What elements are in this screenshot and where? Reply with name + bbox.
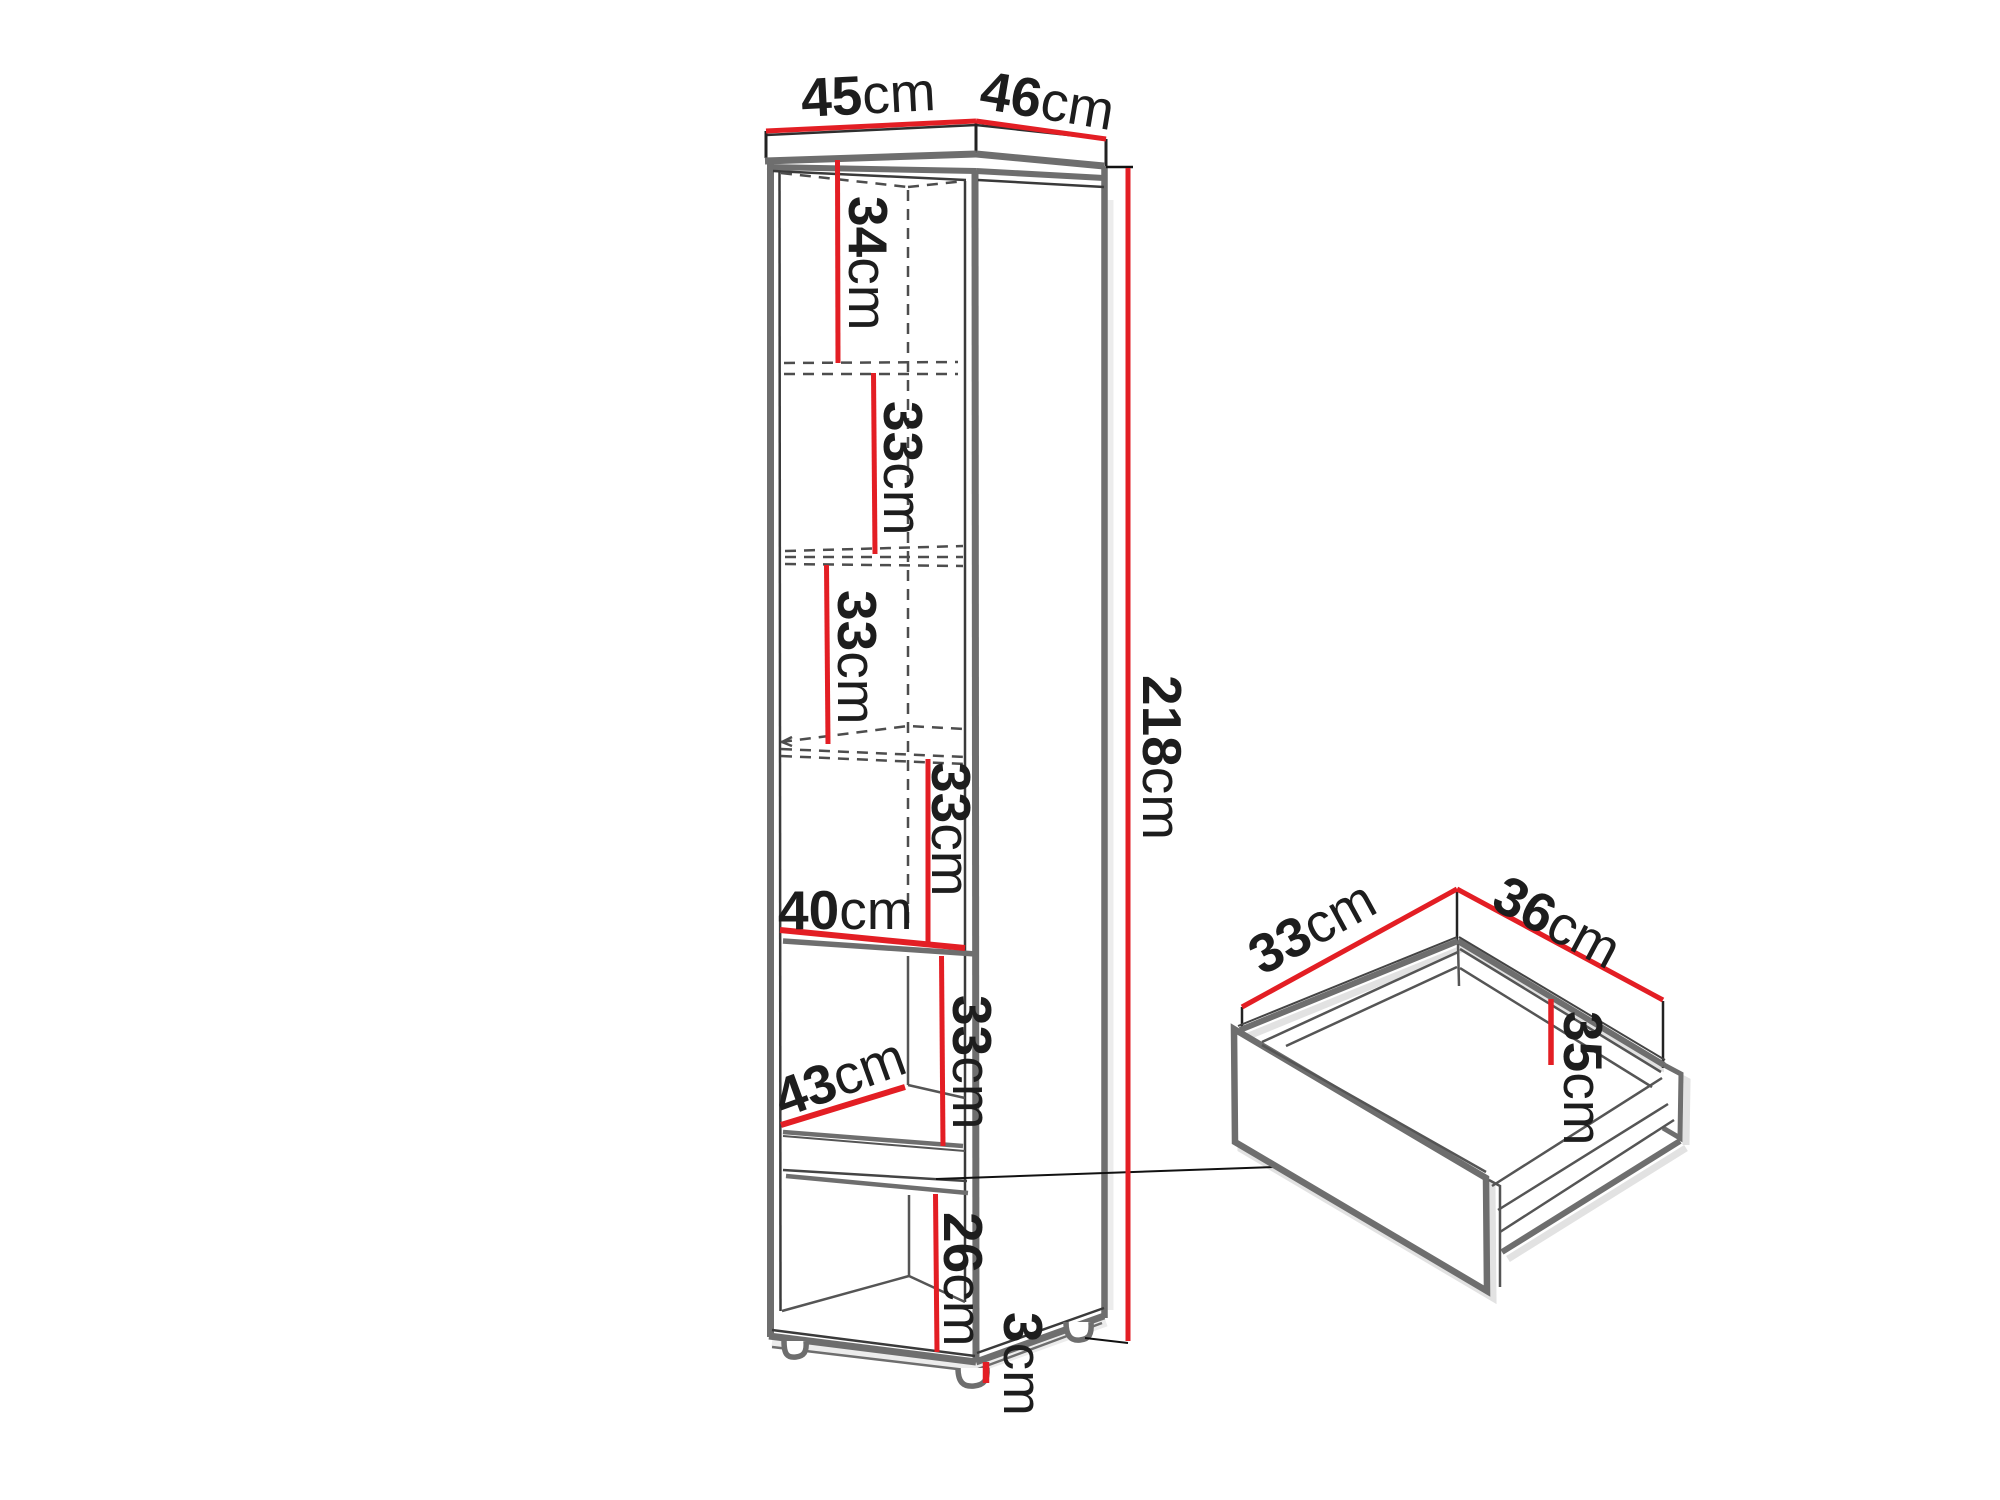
svg-text:35cm: 35cm [1552, 1011, 1614, 1146]
svg-text:218cm: 218cm [1131, 675, 1193, 840]
svg-text:45cm: 45cm [799, 60, 937, 129]
svg-text:46cm: 46cm [976, 59, 1119, 142]
svg-text:33cm: 33cm [920, 762, 982, 897]
svg-text:36cm: 36cm [1483, 863, 1631, 981]
svg-text:33cm: 33cm [941, 995, 1003, 1130]
svg-text:3cm: 3cm [992, 1312, 1054, 1416]
svg-text:26cm: 26cm [932, 1212, 994, 1347]
svg-text:33cm: 33cm [872, 401, 934, 536]
svg-text:40cm: 40cm [778, 879, 913, 941]
svg-text:34cm: 34cm [837, 196, 899, 331]
svg-text:33cm: 33cm [826, 590, 888, 725]
svg-text:43cm: 43cm [766, 1025, 914, 1129]
